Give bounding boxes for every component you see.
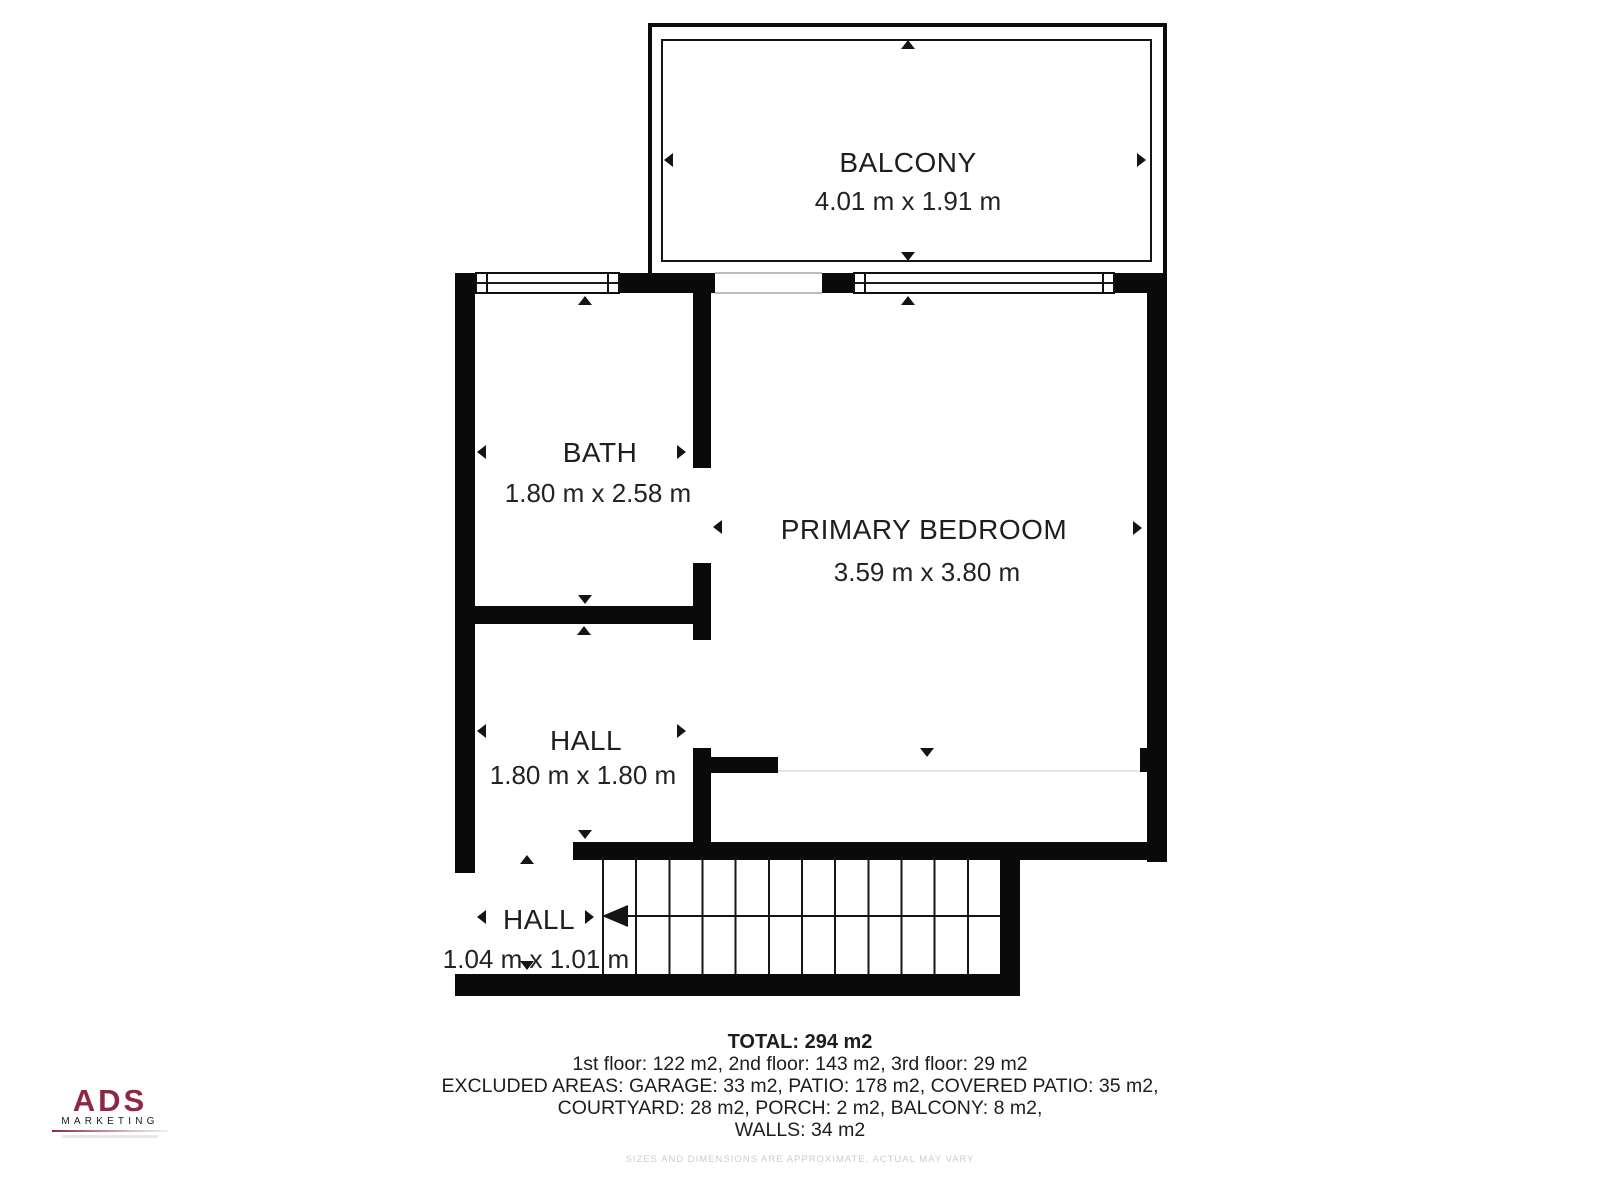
- room-label-hall-lower: HALL: [503, 904, 575, 936]
- area-summary: TOTAL: 294 m2 1st floor: 122 m2, 2nd flo…: [0, 1031, 1600, 1141]
- dim-arrow-hall-right: [677, 724, 686, 738]
- company-logo: ADS MARKETING: [52, 1086, 168, 1138]
- dim-arrow-hall2-top: [520, 855, 534, 864]
- room-label-balcony: BALCONY: [839, 147, 976, 179]
- summary-floors: 1st floor: 122 m2, 2nd floor: 143 m2, 3r…: [0, 1053, 1600, 1075]
- stairs-direction-line: [622, 915, 1000, 917]
- wall-left: [455, 273, 475, 873]
- disclaimer-text: SIZES AND DIMENSIONS ARE APPROXIMATE, AC…: [626, 1154, 975, 1165]
- dim-arrow-balcony-bottom: [901, 252, 915, 261]
- dim-arrow-hall-top: [577, 626, 591, 635]
- dim-arrow-bedroom-right: [1133, 521, 1142, 535]
- dim-arrow-bedroom-left: [713, 520, 722, 534]
- dim-arrow-hall2-left: [477, 910, 486, 924]
- dim-arrow-balcony-left: [664, 153, 673, 167]
- summary-walls: WALLS: 34 m2: [0, 1119, 1600, 1141]
- stairs-direction-arrow: [602, 905, 628, 927]
- logo-divider: [52, 1130, 168, 1132]
- dim-arrow-hall-left: [477, 724, 486, 738]
- room-label-hall-upper: HALL: [550, 725, 622, 757]
- door-stop-notch: [1140, 748, 1148, 772]
- room-dims-balcony: 4.01 m x 1.91 m: [815, 186, 1001, 217]
- logo-name: ADS: [52, 1086, 168, 1116]
- bedroom-landing-boundary: [778, 770, 1140, 772]
- dim-arrow-bath-top: [578, 296, 592, 305]
- wall-bottom: [455, 974, 1020, 996]
- dim-arrow-bedroom-bottom: [920, 748, 934, 757]
- wall-right: [1147, 273, 1167, 862]
- wall-bath-bottom: [475, 606, 693, 624]
- dim-arrow-hall-bottom: [578, 830, 592, 839]
- bedroom-window: [853, 272, 1115, 294]
- wall-hall-right-lower: [693, 748, 711, 857]
- dim-arrow-balcony-top: [901, 40, 915, 49]
- room-label-bath: BATH: [563, 437, 638, 469]
- summary-total: TOTAL: 294 m2: [0, 1031, 1600, 1053]
- wall-bath-right-upper: [693, 293, 711, 468]
- summary-excluded-1: EXCLUDED AREAS: GARAGE: 33 m2, PATIO: 17…: [0, 1075, 1600, 1097]
- floor-plan: BALCONY 4.01 m x 1.91 m BATH 1.80 m x 2.…: [0, 0, 1600, 1200]
- room-dims-hall-lower: 1.04 m x 1.01 m: [443, 944, 629, 975]
- wall-top-segment-a: [620, 273, 715, 293]
- dim-arrow-balcony-right: [1137, 153, 1146, 167]
- wall-landing-stub: [711, 757, 778, 773]
- bath-window: [475, 272, 620, 294]
- dim-arrow-bath-left: [477, 445, 486, 459]
- room-dims-hall-upper: 1.80 m x 1.80 m: [490, 760, 676, 791]
- dim-arrow-hall2-right: [585, 910, 594, 924]
- logo-subtitle: MARKETING: [52, 1116, 168, 1127]
- logo-tagline-placeholder: [62, 1135, 158, 1138]
- wall-bath-right-mid: [693, 563, 711, 640]
- dim-arrow-bath-bottom: [578, 595, 592, 604]
- balcony-door-opening: [715, 272, 822, 294]
- room-label-primary-bedroom: PRIMARY BEDROOM: [781, 514, 1068, 546]
- summary-excluded-2: COURTYARD: 28 m2, PORCH: 2 m2, BALCONY: …: [0, 1097, 1600, 1119]
- wall-top-segment-b: [822, 273, 853, 293]
- dim-arrow-bedroom-top: [901, 296, 915, 305]
- room-dims-primary-bedroom: 3.59 m x 3.80 m: [834, 557, 1020, 588]
- dim-arrow-bath-right: [677, 445, 686, 459]
- room-dims-bath: 1.80 m x 2.58 m: [505, 478, 691, 509]
